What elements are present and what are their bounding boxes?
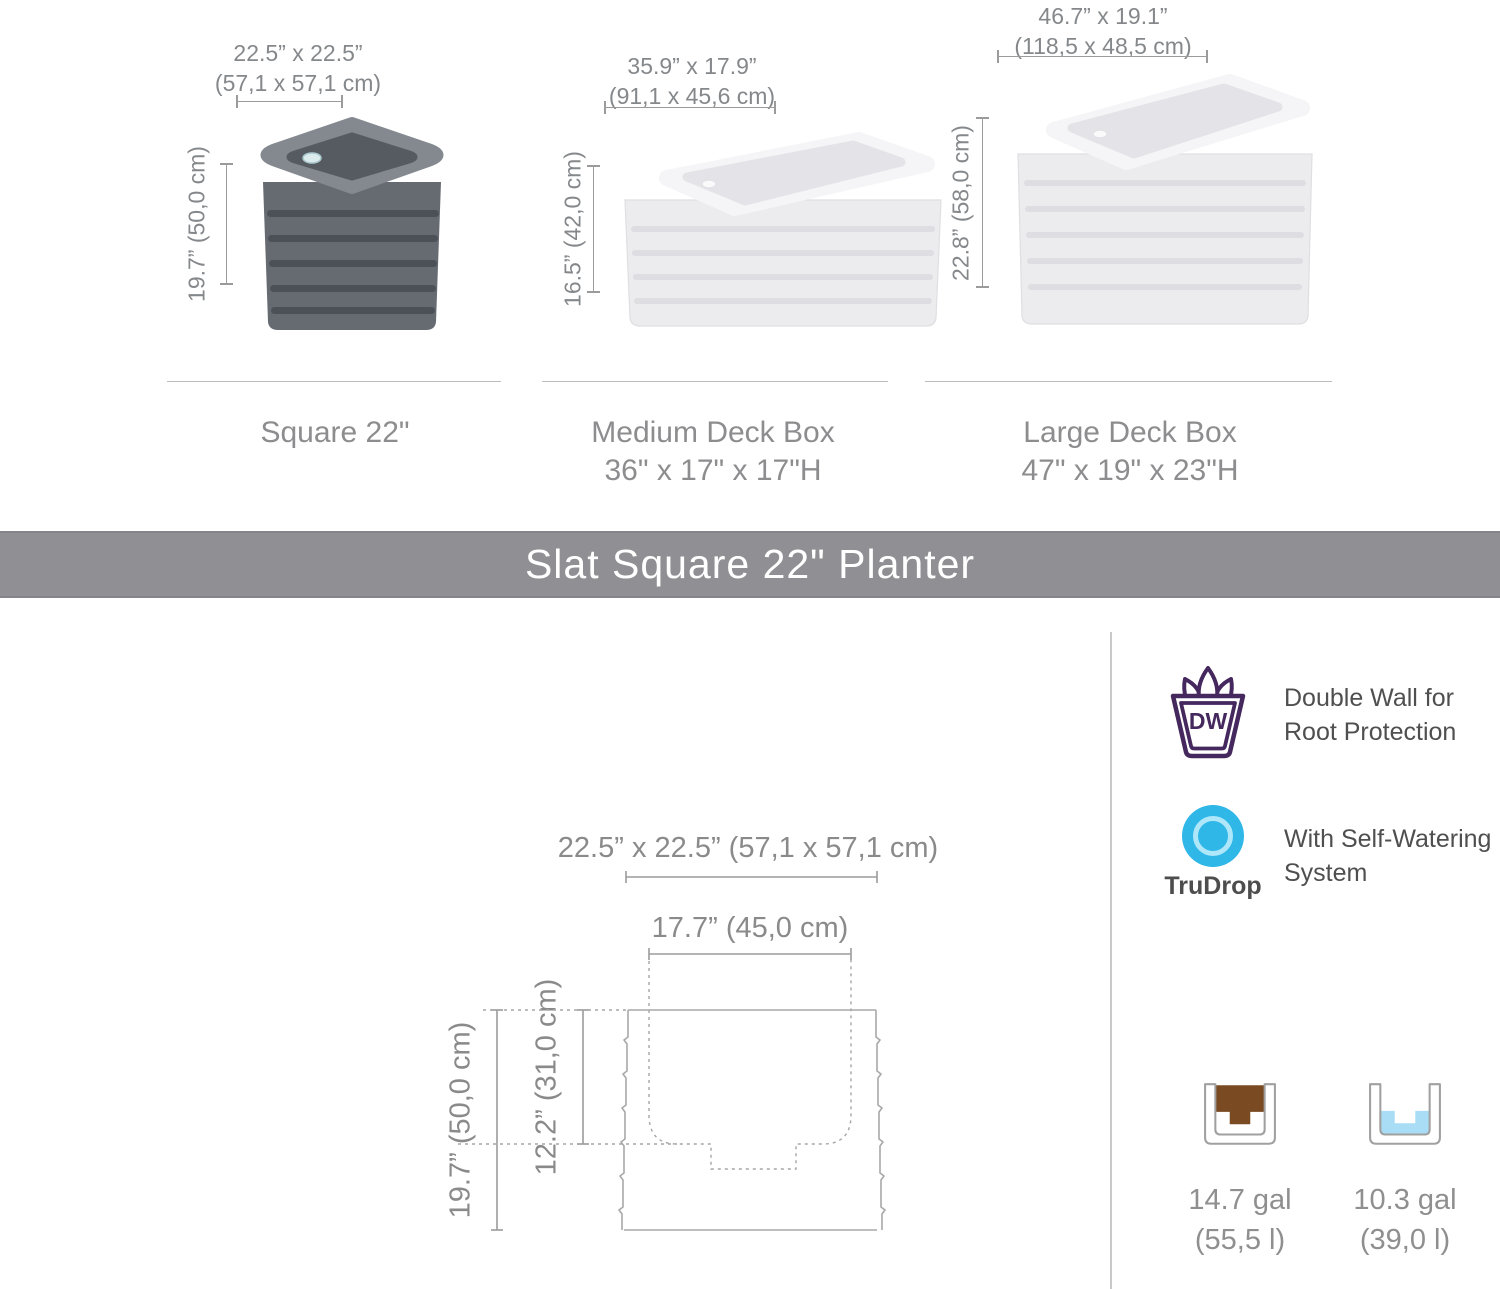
width-inches: 46.7” x 19.1”	[953, 1, 1253, 31]
double-wall-icon: DW	[1166, 666, 1250, 762]
width-metric: (57,1 x 57,1 cm)	[148, 68, 448, 98]
planter-outline	[619, 1010, 885, 1230]
planter-size-infographic: 22.5” x 22.5” (57,1 x 57,1 cm) 19.7” (50…	[0, 0, 1500, 1289]
soil-capacity-icon	[1202, 1083, 1278, 1149]
soil-capacity-label: 14.7 gal (55,5 l)	[1165, 1180, 1315, 1260]
planter-size: 36" x 17" x 17"H	[543, 452, 883, 490]
outer-width-dim-line	[626, 871, 877, 883]
large-height-dim-line	[982, 117, 983, 288]
cross-section-drawing	[440, 820, 1000, 1250]
medium-width-dim-line	[604, 107, 776, 108]
soil-liters: (55,5 l)	[1165, 1220, 1315, 1260]
dw-badge-text: DW	[1189, 708, 1228, 734]
medium-height-dim-line	[593, 165, 594, 293]
inner-depth-dim-line	[577, 1010, 589, 1144]
water-liters: (39,0 l)	[1330, 1220, 1480, 1260]
soil-gallons: 14.7 gal	[1165, 1180, 1315, 1220]
double-wall-description: Double Wall for Root Protection	[1284, 681, 1456, 749]
water-level-indicator-icon	[702, 180, 716, 188]
width-inches: 22.5” x 22.5”	[148, 38, 448, 68]
large-height-dimension: 22.8” (58,0 cm)	[948, 125, 975, 281]
large-width-dim-line	[997, 56, 1208, 57]
width-inches: 35.9” x 17.9”	[542, 51, 842, 81]
water-capacity-icon	[1367, 1083, 1443, 1149]
large-deck-box-illustration	[992, 68, 1337, 330]
square-height-dimension: 19.7” (50,0 cm)	[184, 146, 211, 302]
planter-body	[625, 200, 941, 326]
vertical-divider	[1110, 632, 1112, 1289]
inner-width-dim-line	[649, 948, 851, 960]
square-width-dim-line	[236, 101, 343, 102]
medium-height-dimension: 16.5” (42,0 cm)	[560, 151, 587, 307]
self-watering-line2: System	[1284, 856, 1491, 890]
square-height-dim-line	[226, 163, 227, 285]
square-planter-illustration	[237, 110, 467, 338]
water-gallons: 10.3 gal	[1330, 1180, 1480, 1220]
planter-size: 47" x 19" x 23"H	[960, 452, 1300, 490]
double-wall-line2: Root Protection	[1284, 715, 1456, 749]
planter-opening	[687, 145, 901, 201]
medium-planter-name: Medium Deck Box 36" x 17" x 17"H	[543, 414, 883, 490]
self-watering-line1: With Self-Watering	[1284, 822, 1491, 856]
title-banner: Slat Square 22" Planter	[0, 531, 1500, 598]
planter-name: Large Deck Box	[960, 414, 1300, 452]
water-fill	[1380, 1111, 1429, 1135]
water-capacity-label: 10.3 gal (39,0 l)	[1330, 1180, 1480, 1260]
water-level-indicator-icon	[1093, 130, 1107, 138]
trudrop-circle	[1182, 805, 1244, 867]
outer-height-dim-line	[491, 1010, 503, 1230]
large-divider-rule	[925, 381, 1332, 382]
trudrop-icon	[1181, 804, 1245, 868]
double-wall-line1: Double Wall for	[1284, 681, 1456, 715]
square-divider-rule	[167, 381, 501, 382]
medium-width-dimension: 35.9” x 17.9” (91,1 x 45,6 cm)	[542, 51, 842, 111]
medium-divider-rule	[542, 381, 888, 382]
page-title: Slat Square 22" Planter	[525, 541, 975, 588]
container-outline	[1370, 1084, 1440, 1144]
square-width-dimension: 22.5” x 22.5” (57,1 x 57,1 cm)	[148, 38, 448, 98]
inner-liner-dashed-outline	[649, 954, 851, 1169]
soil-fill	[1215, 1085, 1264, 1124]
extension-dashed-lines	[458, 1010, 677, 1144]
medium-deck-box-illustration	[597, 122, 969, 334]
self-watering-description: With Self-Watering System	[1284, 822, 1491, 890]
water-level-indicator-icon	[303, 153, 321, 163]
large-planter-name: Large Deck Box 47" x 19" x 23"H	[960, 414, 1300, 490]
planter-name: Medium Deck Box	[543, 414, 883, 452]
planter-body	[1018, 154, 1312, 324]
trudrop-brand-label: TruDrop	[1138, 872, 1288, 901]
square-planter-name: Square 22"	[165, 414, 505, 452]
planter-opening	[1072, 88, 1278, 154]
